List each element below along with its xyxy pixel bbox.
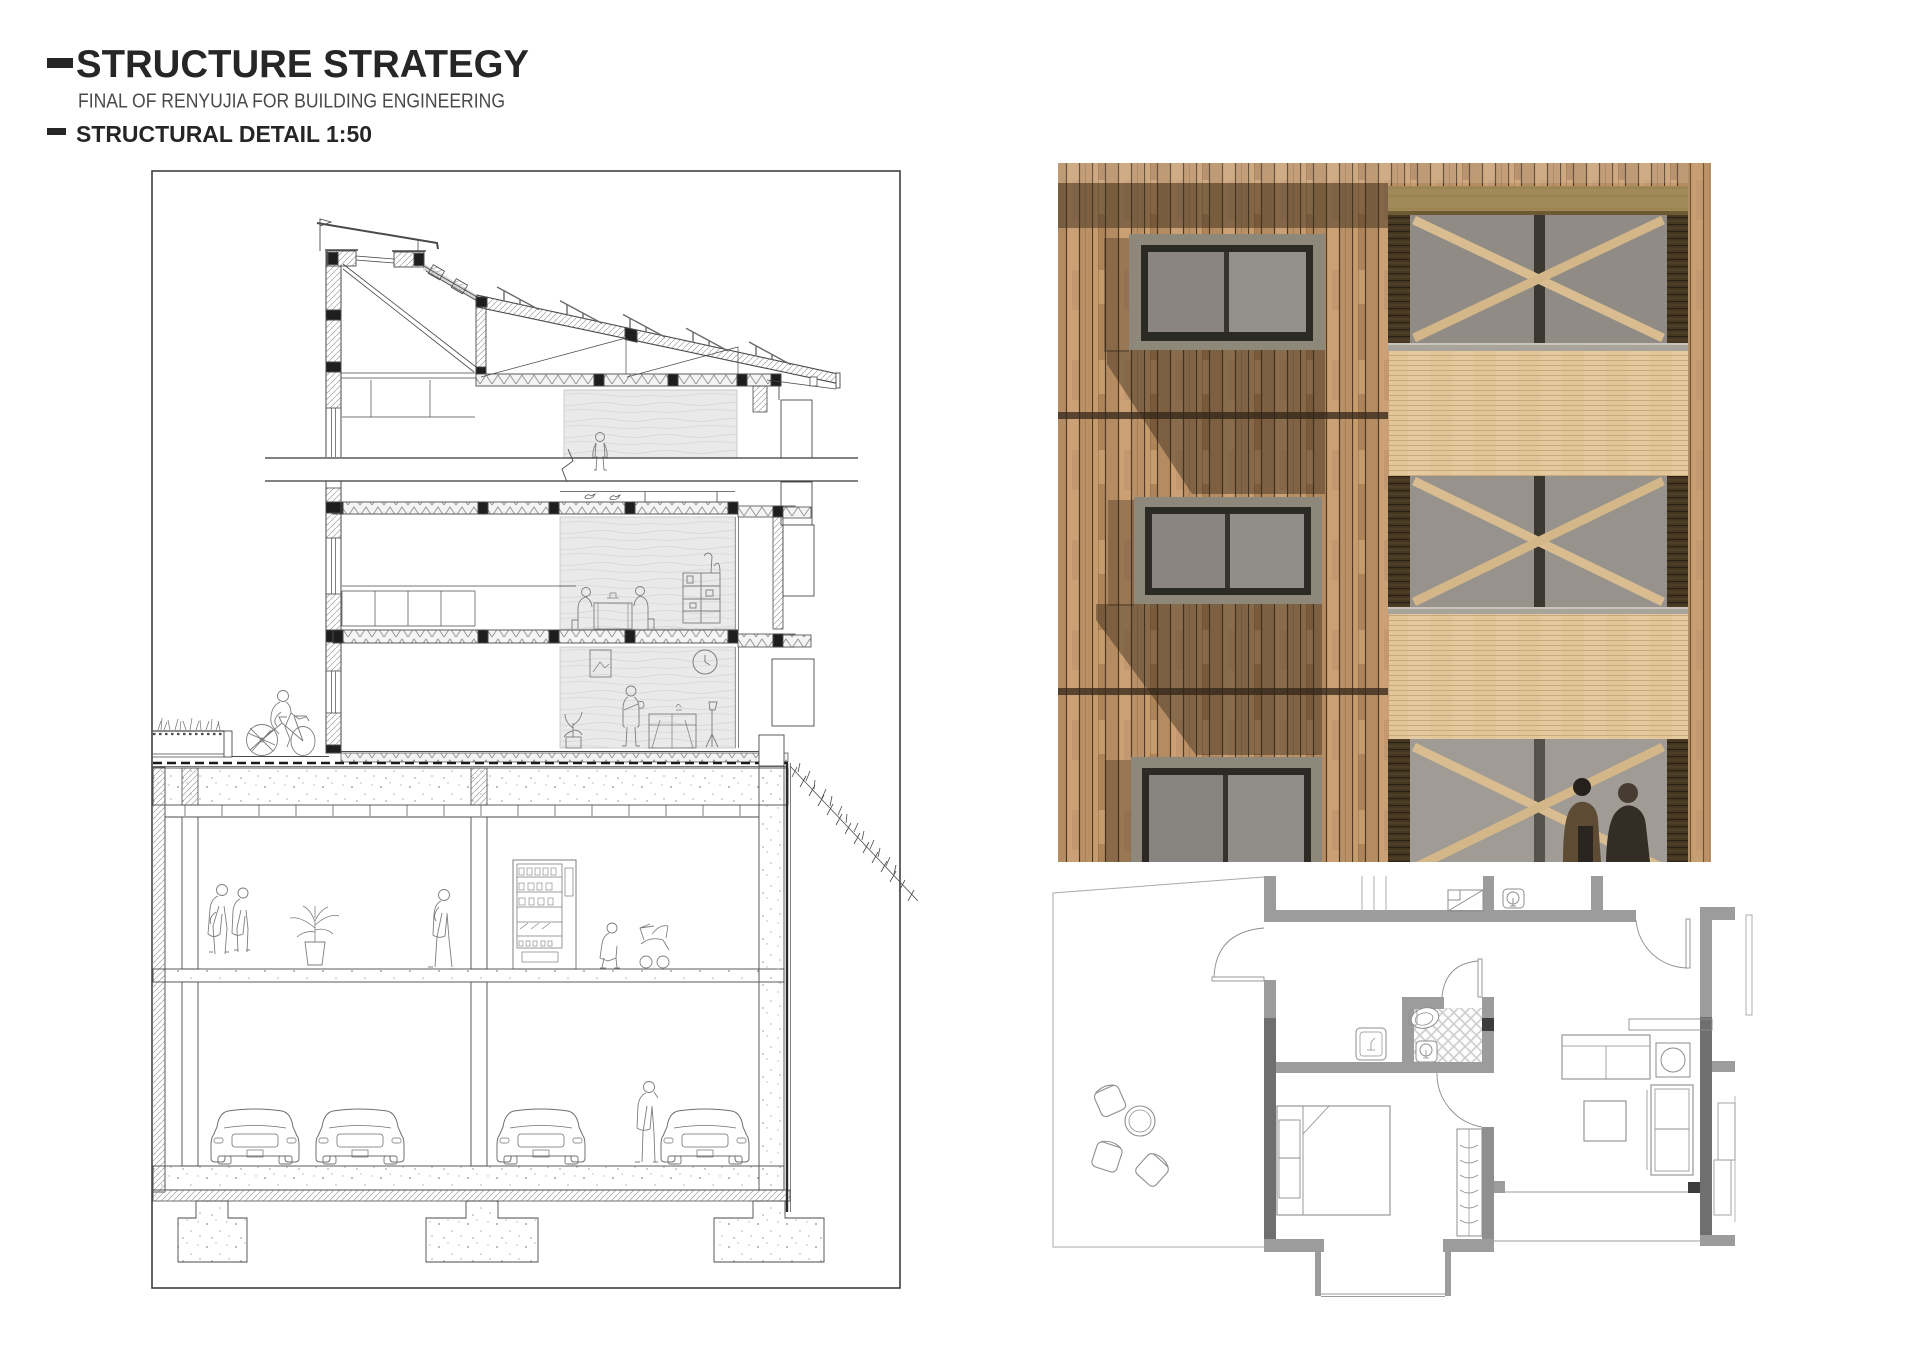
svg-text:STRUCTURAL DETAIL 1:50: STRUCTURAL DETAIL 1:50 <box>76 121 372 147</box>
svg-text:FINAL OF RENYUJIA FOR BUILDING: FINAL OF RENYUJIA FOR BUILDING ENGINEERI… <box>78 90 505 113</box>
svg-text:STRUCTURE STRATEGY: STRUCTURE STRATEGY <box>76 43 529 86</box>
